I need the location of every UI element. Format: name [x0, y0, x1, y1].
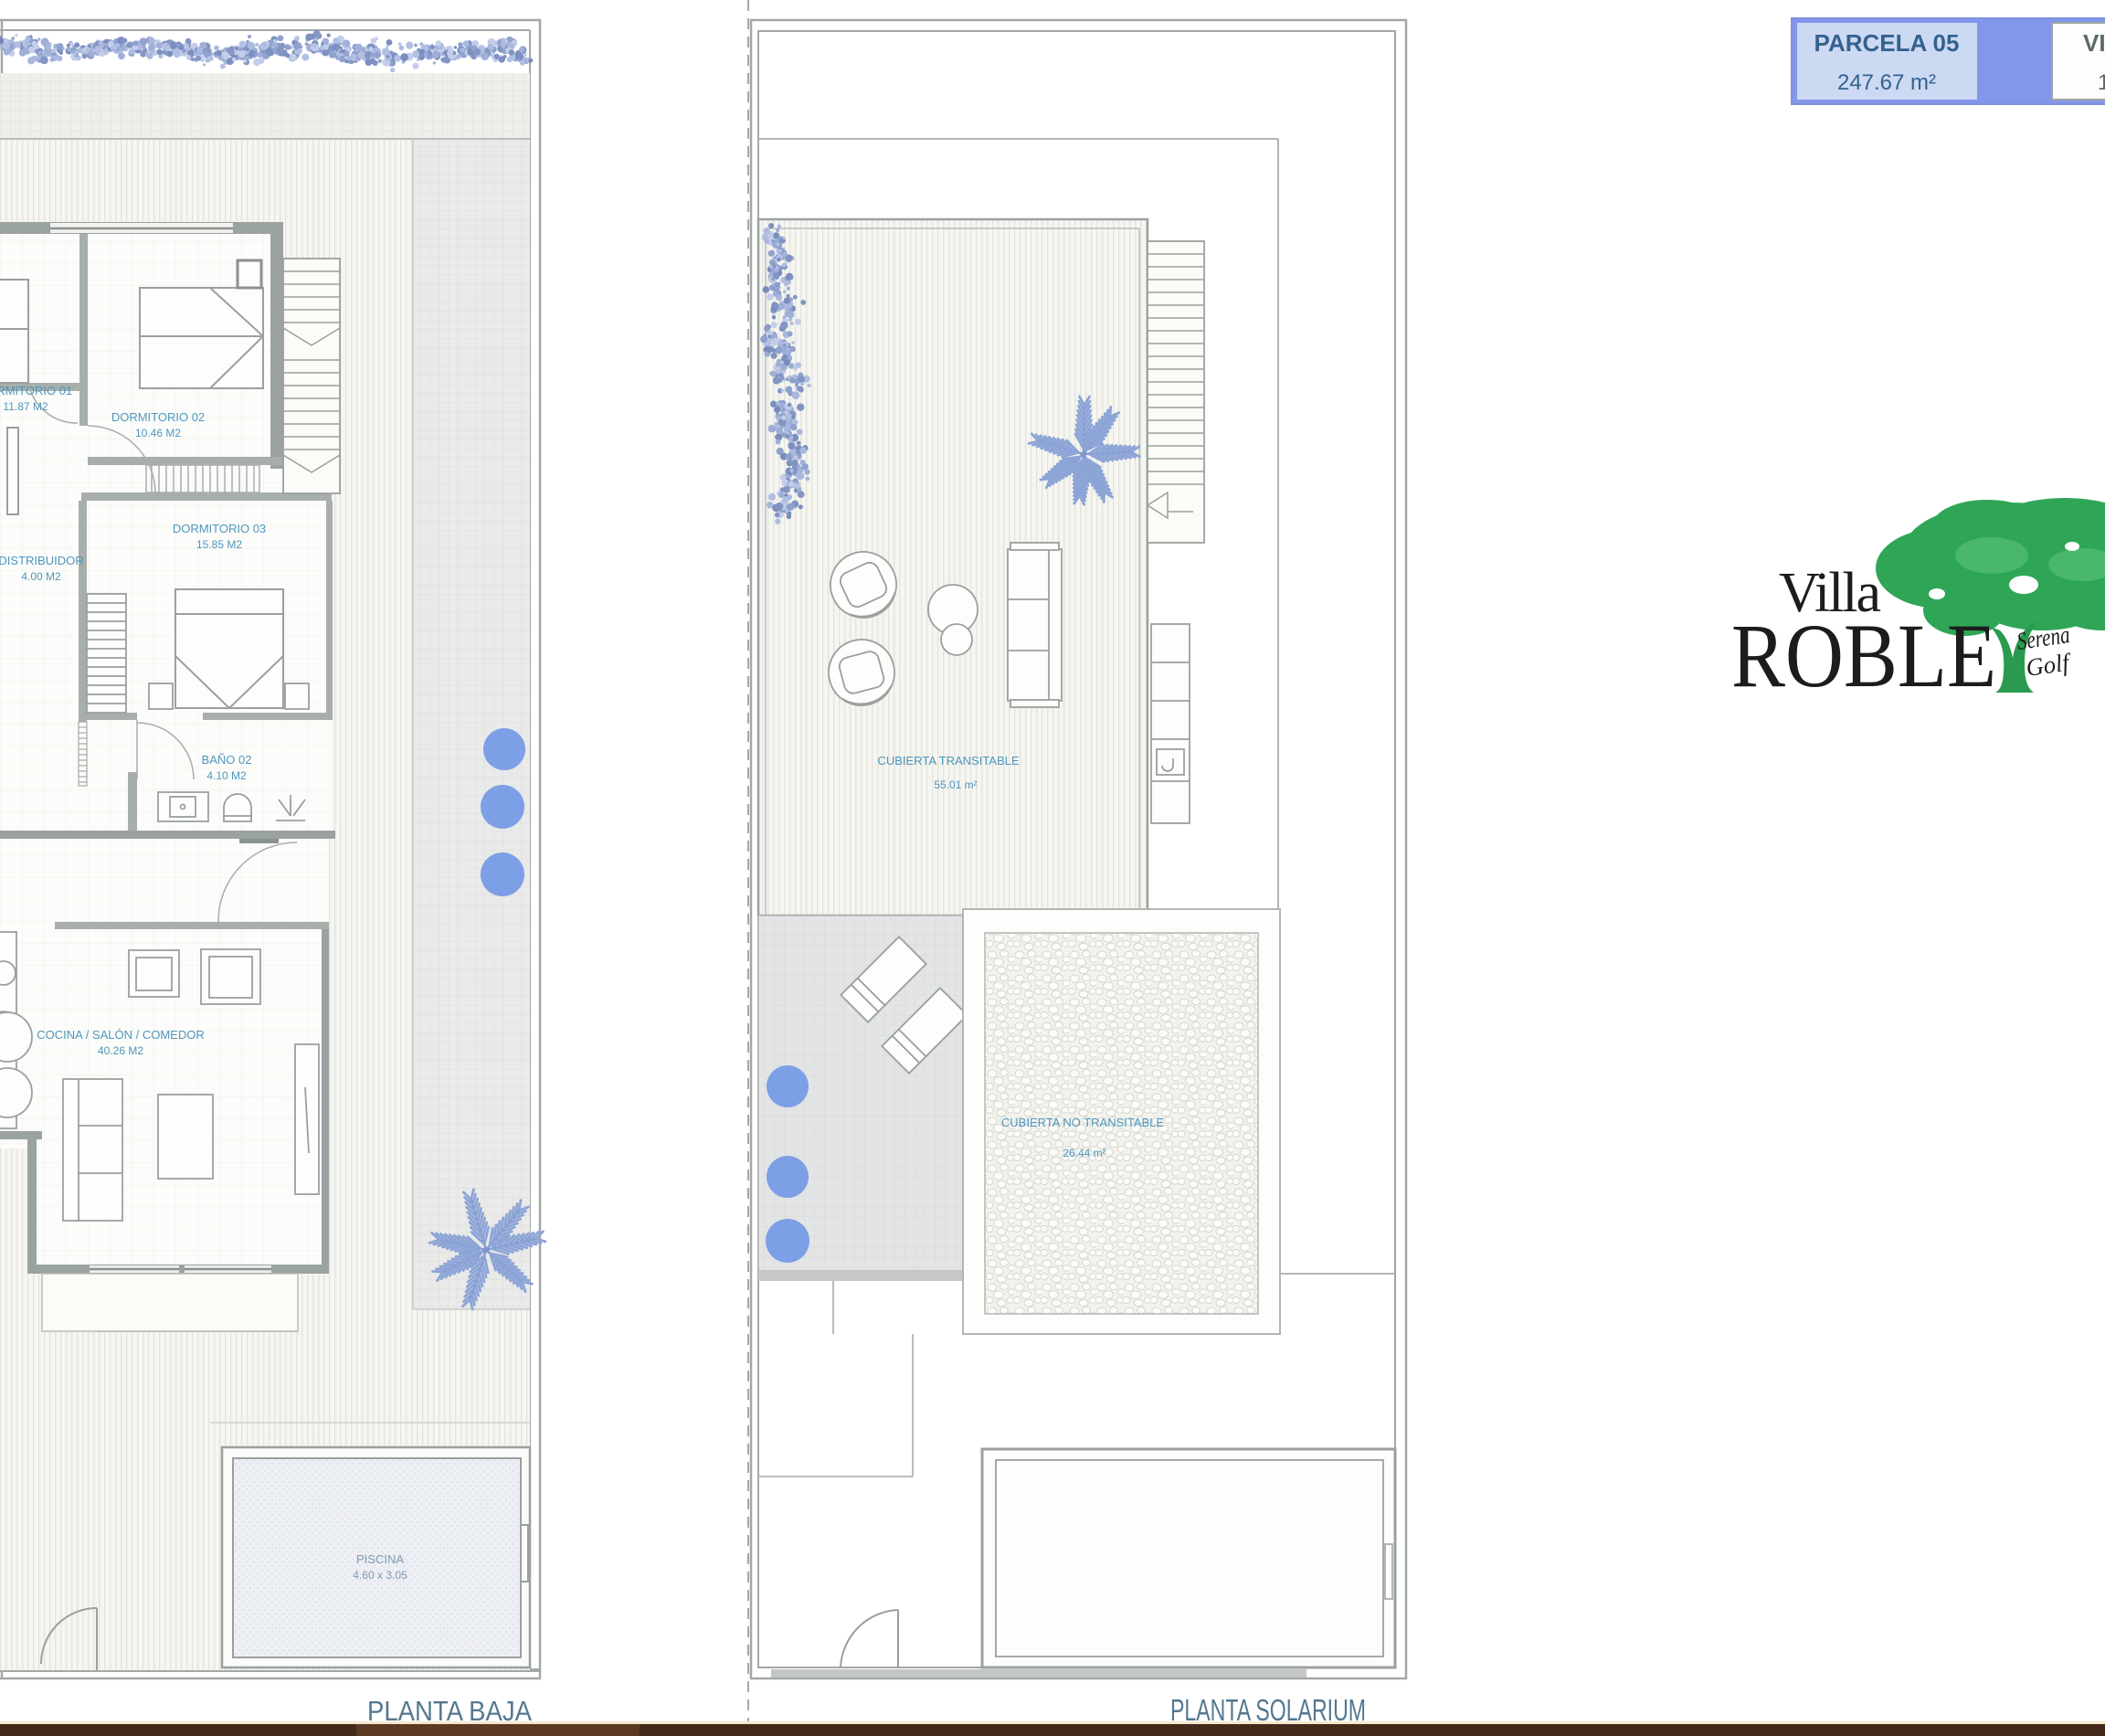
svg-text:VIVI: VIVI — [2083, 29, 2105, 57]
svg-text:15.85 M2: 15.85 M2 — [196, 538, 242, 551]
svg-text:CUBIERTA NO TRANSITABLE: CUBIERTA NO TRANSITABLE — [1001, 1116, 1165, 1129]
svg-text:55.01 m²: 55.01 m² — [934, 778, 977, 791]
svg-text:247.67 m²: 247.67 m² — [1837, 70, 1936, 95]
svg-text:11.87 M2: 11.87 M2 — [3, 400, 48, 413]
svg-text:26.44 m²: 26.44 m² — [1063, 1147, 1105, 1159]
svg-text:4.60 x 3.05: 4.60 x 3.05 — [353, 1569, 407, 1582]
svg-text:DORMITORIO 03: DORMITORIO 03 — [173, 522, 266, 535]
svg-text:COCINA / SALÓN / COMEDOR: COCINA / SALÓN / COMEDOR — [37, 1028, 204, 1042]
svg-text:4.00 M2: 4.00 M2 — [21, 570, 61, 583]
svg-text:PISCINA: PISCINA — [356, 1552, 404, 1566]
svg-text:17: 17 — [2098, 70, 2105, 95]
svg-text:ROBLE: ROBLE — [1731, 605, 1996, 706]
svg-text:BAÑO 02: BAÑO 02 — [202, 753, 252, 767]
svg-text:10.46 M2: 10.46 M2 — [135, 427, 181, 439]
svg-text:CUBIERTA TRANSITABLE: CUBIERTA TRANSITABLE — [877, 754, 1019, 767]
svg-text:DORMITORIO 02: DORMITORIO 02 — [111, 410, 205, 424]
svg-text:PARCELA 05: PARCELA 05 — [1814, 29, 1960, 57]
svg-text:DISTRIBUIDOR: DISTRIBUIDOR — [0, 554, 84, 567]
svg-text:DORMITORIO 01: DORMITORIO 01 — [0, 384, 72, 397]
svg-text:40.26 M2: 40.26 M2 — [98, 1044, 143, 1057]
svg-text:4.10 M2: 4.10 M2 — [206, 769, 247, 782]
